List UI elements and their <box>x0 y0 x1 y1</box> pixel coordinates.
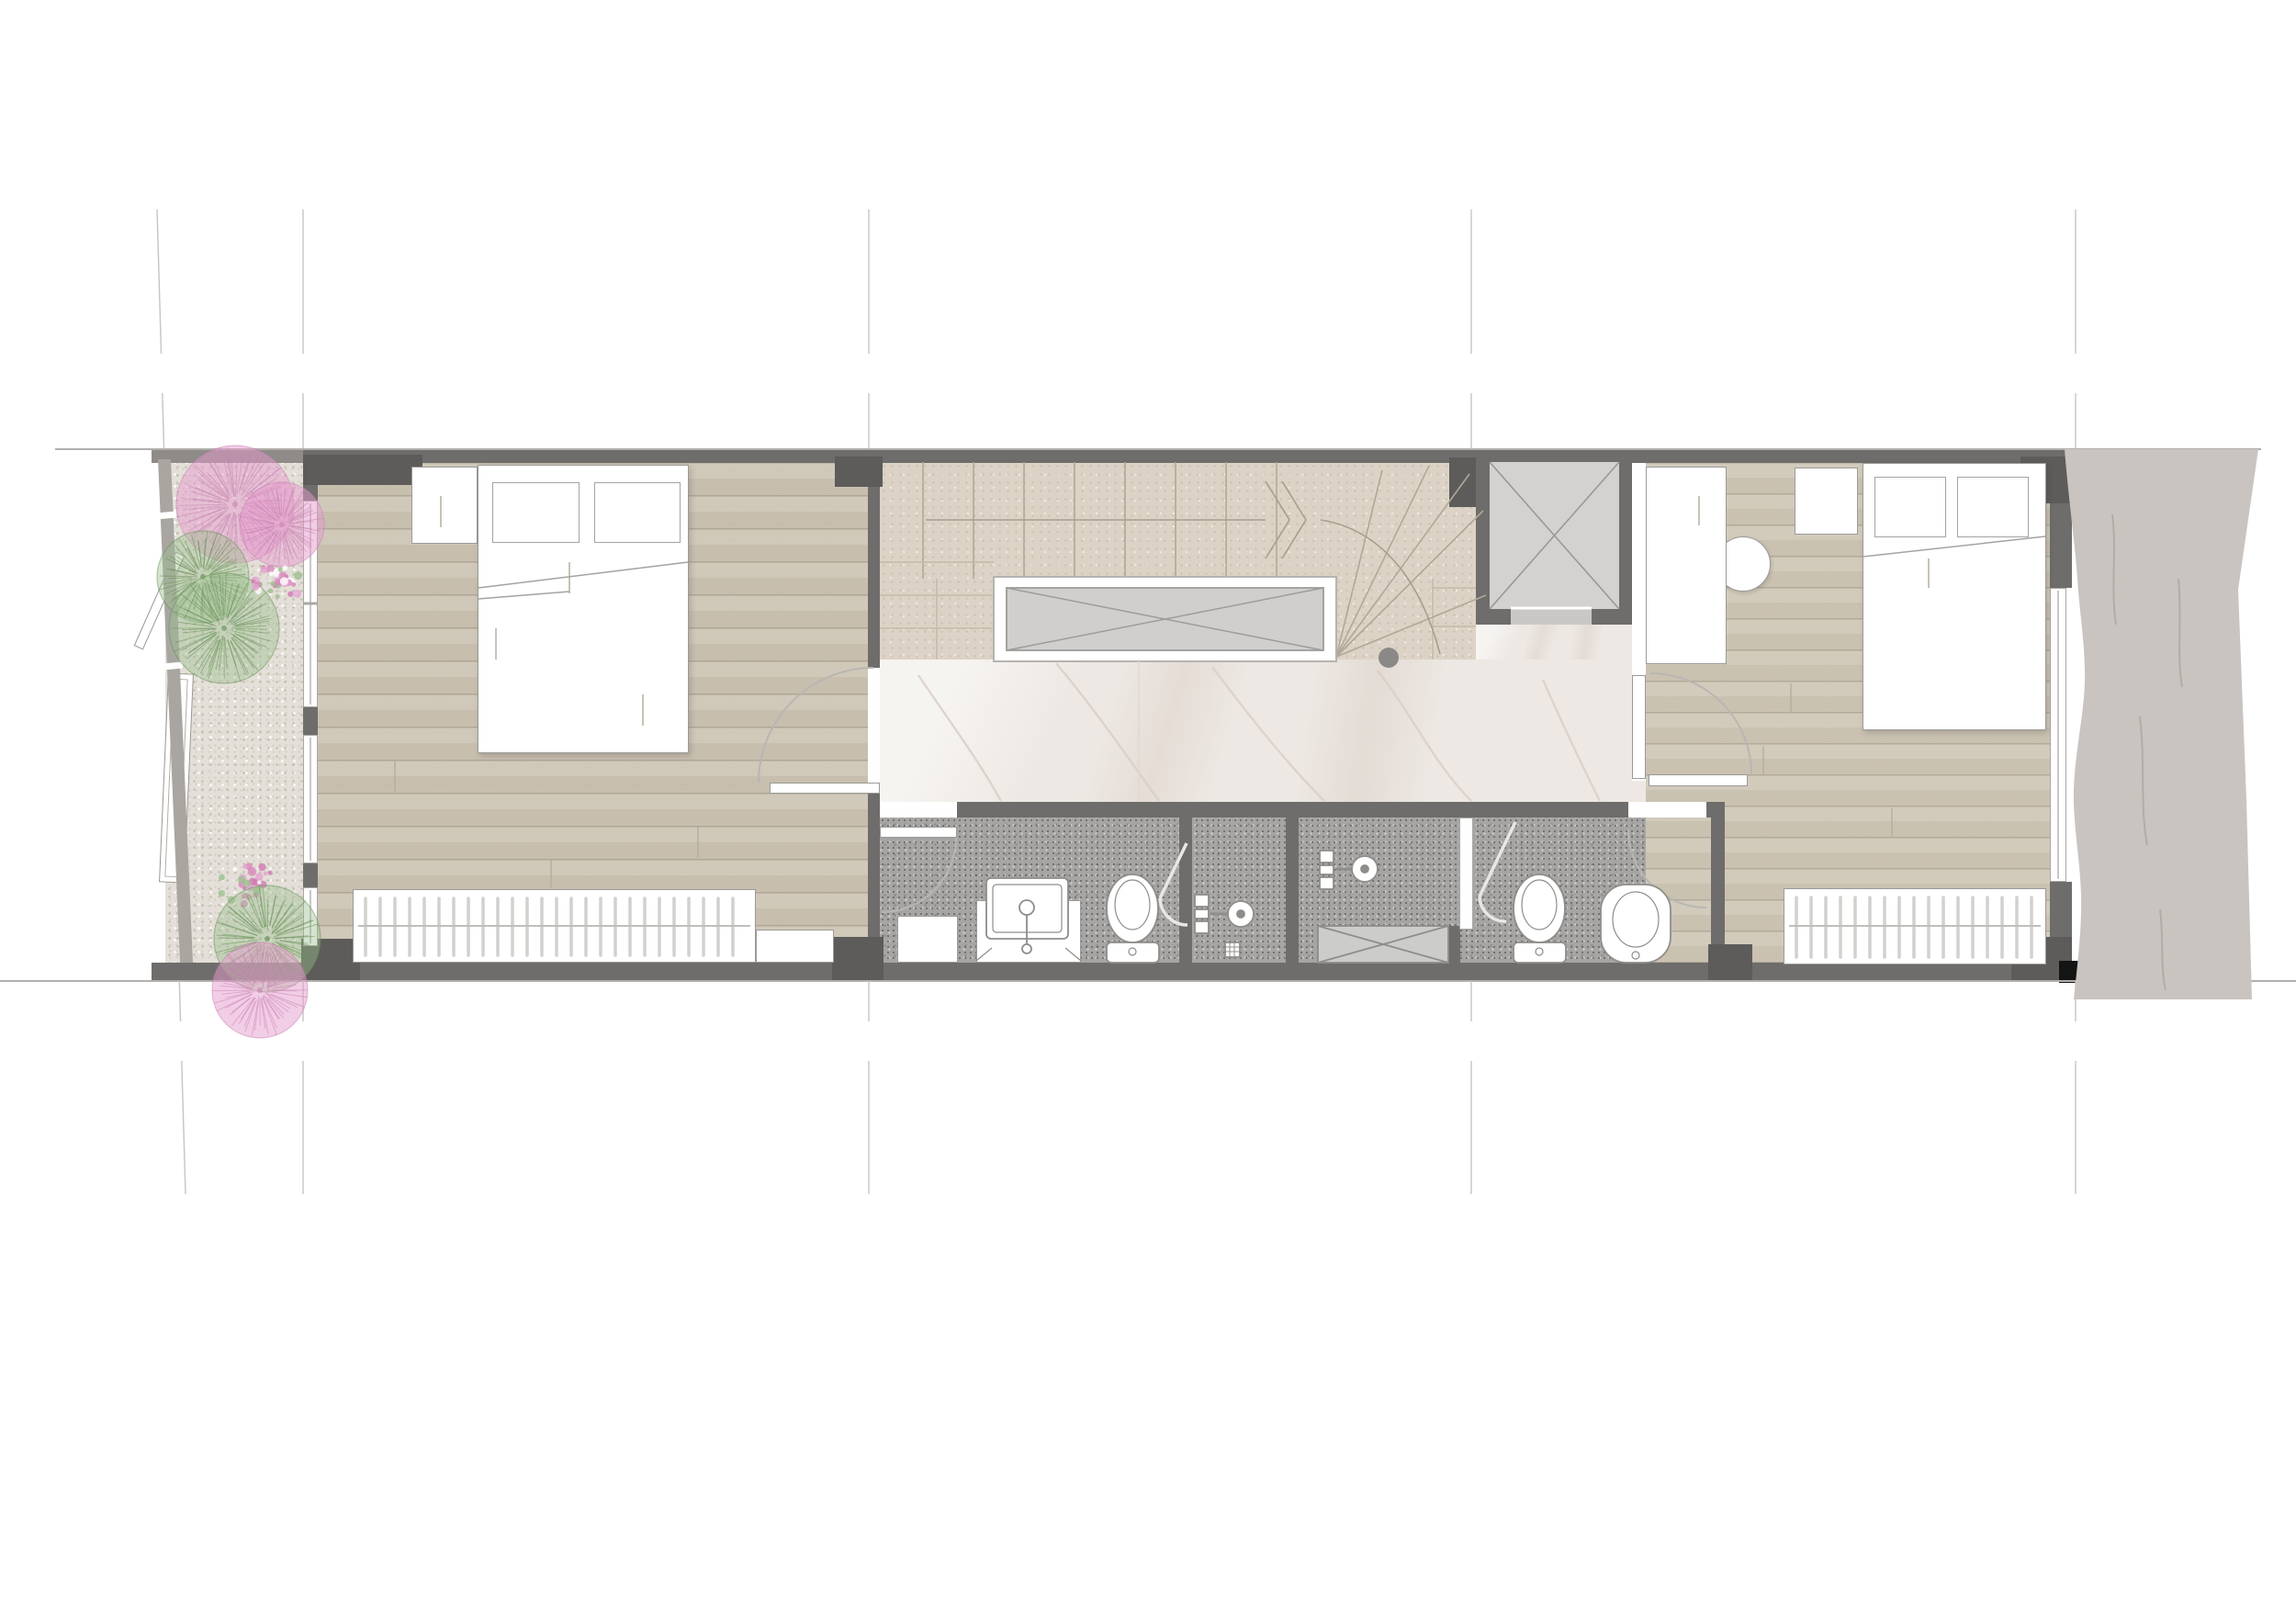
nightstand <box>411 467 478 544</box>
pillow <box>594 482 681 543</box>
bath-glass-partition <box>1459 818 1473 930</box>
elevator-wall-right <box>1619 462 1632 625</box>
pillow <box>1957 477 2029 537</box>
pillow <box>1874 477 1946 537</box>
bottom-exterior-wall <box>152 963 2072 981</box>
duct-wall-stub <box>1448 926 1460 963</box>
stair-landing-floor <box>880 462 1476 660</box>
hall-marble-floor <box>880 660 1649 802</box>
bedroom-east-wall-upper <box>868 462 880 668</box>
bedroom-west-window <box>303 501 318 707</box>
adjacent-roof <box>2065 449 2258 999</box>
vanity-counter <box>976 900 1081 963</box>
side-cabinet <box>756 930 834 963</box>
bedroom-west-window <box>303 735 318 863</box>
second-bath-door-opening <box>1628 802 1706 818</box>
double-bed <box>478 465 689 753</box>
elevator-wall-left <box>1476 462 1490 625</box>
column <box>832 937 884 981</box>
door-threshold <box>770 783 880 794</box>
hall-marble-floor-elevator-strip <box>1476 625 1649 660</box>
pillow <box>492 482 580 543</box>
master-bath-door-leaf <box>880 827 957 838</box>
column <box>1708 944 1752 981</box>
bedroom-door-opening <box>868 668 880 783</box>
column <box>303 455 422 485</box>
corner-black-block <box>2059 961 2090 983</box>
bath-partition-1 <box>1179 818 1192 963</box>
floor-plan-canvas <box>0 0 2296 1624</box>
bedroom2-door-leaf <box>1632 675 1646 779</box>
single-bed <box>1863 463 2046 730</box>
bedroom2-east-window <box>2050 588 2066 882</box>
wardrobe <box>1784 888 2046 964</box>
second-bath-east-wall <box>1711 802 1725 963</box>
roof-scratch-lines <box>2112 514 2182 990</box>
bath-base-cabinet <box>897 916 958 963</box>
bedroom-west-window <box>303 887 318 946</box>
bedroom-west-wall-seg <box>303 707 318 735</box>
elevator-cab <box>1490 462 1619 609</box>
bathroom-north-wall <box>874 802 1725 818</box>
column <box>835 457 883 487</box>
top-exterior-wall <box>152 448 2072 463</box>
wardrobe <box>353 889 756 963</box>
nightstand <box>1795 468 1858 535</box>
desk-closet <box>1646 467 1727 664</box>
garden-top-wall <box>152 448 303 463</box>
bedroom-west-wall-seg <box>303 863 318 887</box>
second-bath-door-leaf <box>1649 774 1748 786</box>
elevator-door-sill <box>1511 607 1592 625</box>
bath-partition-2 <box>1286 818 1299 963</box>
stair-elevator-wall-stub <box>1449 457 1476 507</box>
master-bath-door-opening <box>880 802 957 818</box>
